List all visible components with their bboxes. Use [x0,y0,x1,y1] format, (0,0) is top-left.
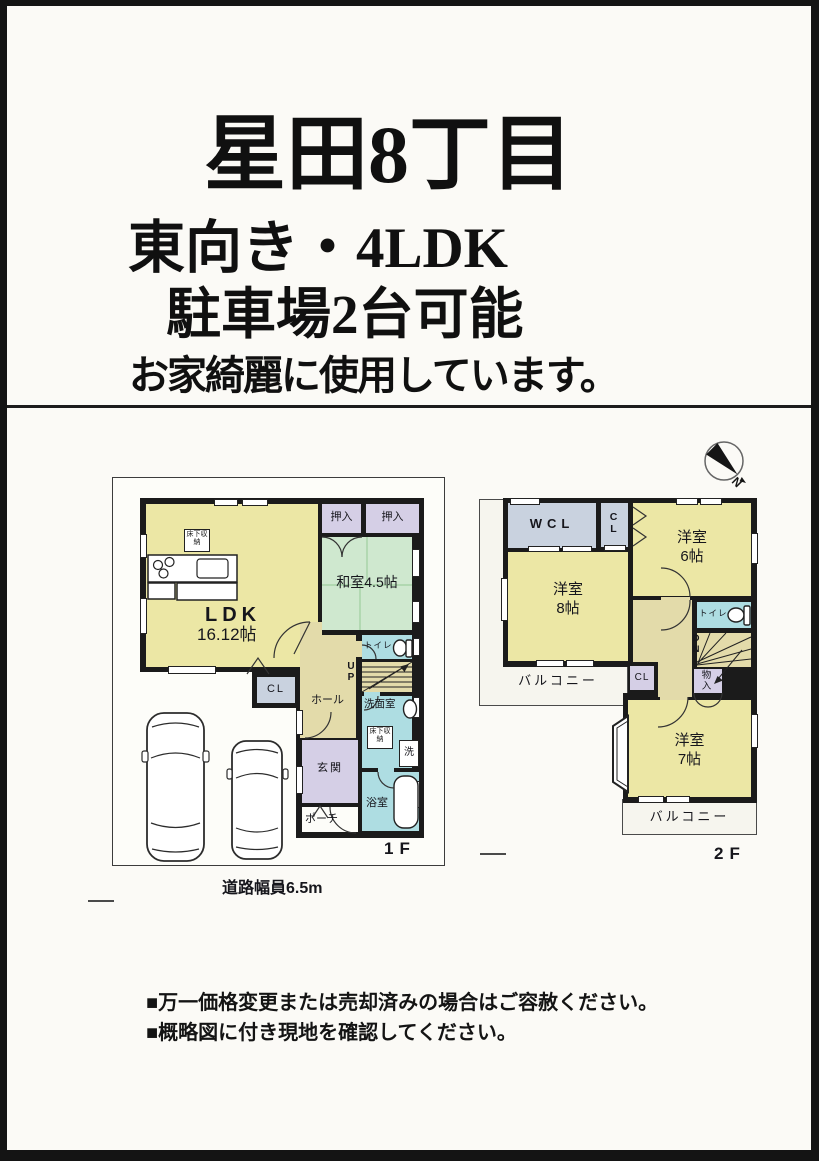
room-hall [300,635,356,738]
underfloor-storage-box-ldk: 床下収納 [184,529,210,552]
window [140,598,147,634]
headline-parking: 駐車場2台可能 [166,287,524,342]
border-right [811,0,819,1161]
disclaimer-site: ■概略図に付き現地を確認してください。 [146,1016,517,1045]
opening-washroom [364,692,380,696]
label-closet-1f: CL [257,683,295,695]
label-washitsu: 和室4.5帖 [322,575,412,590]
label-porch: ポーチ [305,813,338,825]
compass-n-label: N [729,474,745,490]
label-room8: 洋室 [508,582,628,599]
label-floor1: 1F [384,840,416,859]
title-divider [0,405,819,408]
window [751,714,758,748]
window [536,660,564,667]
road-width-note: 道路幅員6.5m [222,880,322,898]
label-ldk-size: 16.12帖 [197,626,257,645]
label-stairs-up: UP [346,661,356,683]
window [638,796,664,803]
label-floor2: 2F [714,845,746,864]
window [413,697,420,718]
window [676,498,698,505]
compass-north-icon: N [705,442,746,490]
label-bathroom: 浴室 [366,797,388,809]
label-closet-top-2f: CL [608,512,619,536]
opening-toilet [356,641,362,657]
opening-6jo [661,597,690,602]
label-hall: ホール [311,694,344,706]
window [296,710,303,735]
real-estate-flyer: 星田8丁目 東向き・4LDK 駐車場2台可能 お家綺麗に使用しています。 LDK… [0,0,819,1161]
underfloor-storage-box-washroom: 床下収納 [367,726,393,749]
tick-mark [88,900,114,902]
border-top [0,0,819,6]
label-wcl: WCL [508,517,596,531]
window [413,781,420,808]
sliding-door [604,545,626,551]
label-toilet-1f: トイレ [364,641,393,650]
sliding-door [562,546,592,552]
opening-7jo [660,693,688,700]
hall-connector [300,622,322,635]
label-stairs-down: DN [691,634,701,655]
label-room8-size: 8帖 [508,601,628,618]
window [412,601,420,623]
window [168,666,216,674]
label-room6-size: 6帖 [633,549,751,566]
window [501,578,508,621]
stairs-up-area [362,662,412,692]
window [700,498,722,505]
window [242,499,268,506]
label-washroom: 洗面室 [364,699,396,711]
label-toilet-2f: トイレ [699,609,728,618]
hall-2f-lower [658,662,692,697]
window [510,498,540,505]
window [412,549,420,577]
label-closet-bottom-2f: CL [630,672,654,683]
label-room7-size: 7帖 [628,752,751,769]
border-left [0,0,7,1161]
label-storage-2f: 物入 [701,671,712,692]
window [566,660,594,667]
label-ldk: LDK [205,604,261,626]
window [666,796,690,803]
window [214,499,238,506]
label-entrance: 玄関 [302,762,358,774]
window [140,534,147,558]
stairs-down-area [697,633,751,667]
headline-condition: お家綺麗に使用しています。 [129,356,618,396]
sliding-door [528,546,560,552]
washer-box: 洗 [399,740,419,767]
label-room6: 洋室 [633,530,751,547]
border-bottom [0,1150,819,1161]
window [751,533,758,564]
tick-mark [480,853,506,855]
disclaimer-price: ■万一価格変更または売却済みの場合はご容赦ください。 [146,986,658,1015]
headline-orientation: 東向き・4LDK [128,220,508,277]
label-balcony-left: バルコニー [498,674,618,688]
label-oshiire-left: 押入 [322,511,361,523]
label-balcony-bottom: バルコニー [622,810,757,824]
label-room7: 洋室 [628,733,751,750]
hall-2f-upper [633,600,692,662]
window [413,638,420,656]
headline-location: 星田8丁目 [204,114,573,196]
opening-bath [378,768,394,772]
label-oshiire-right: 押入 [366,511,419,523]
